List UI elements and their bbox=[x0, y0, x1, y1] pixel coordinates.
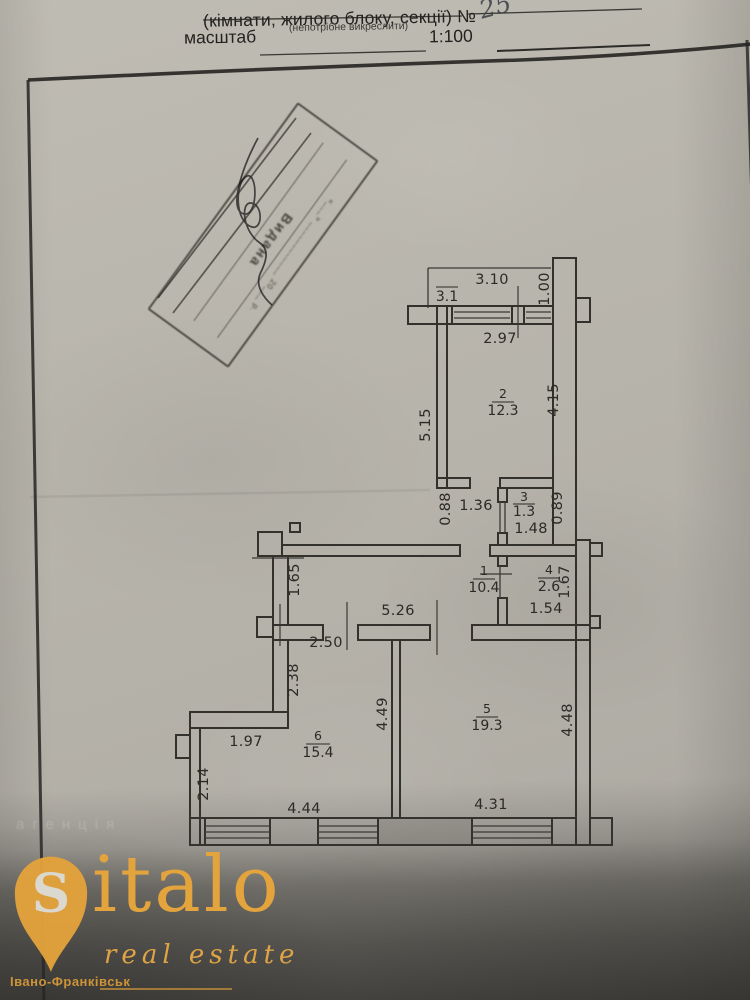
number-sign: № bbox=[457, 6, 476, 26]
logo-city-text: Івано-Франківськ bbox=[10, 974, 130, 989]
dim-label: 5.26 bbox=[381, 603, 415, 619]
dim-label: 2.97 bbox=[483, 331, 517, 347]
scale-label: масштаб bbox=[184, 26, 256, 48]
dim-label: 0.88 bbox=[438, 492, 454, 526]
dim-label: 1.48 bbox=[514, 521, 548, 537]
dim-label: 1.36 bbox=[459, 498, 493, 514]
map-pin-icon: S bbox=[8, 846, 94, 974]
dim-label: 5.15 bbox=[418, 408, 434, 442]
room-number: 4 bbox=[545, 562, 553, 577]
faint-watermark-text: агенція bbox=[16, 816, 122, 833]
room-number: 1 bbox=[480, 563, 488, 578]
form-subtitle: (непотрібне викреслити) bbox=[289, 20, 408, 34]
room-number: 6 bbox=[314, 728, 322, 743]
dim-label: 1.54 bbox=[529, 601, 563, 617]
room-number: 3 bbox=[520, 489, 528, 504]
dim-label: 1.65 bbox=[287, 563, 303, 597]
room-area: 15.4 bbox=[302, 745, 333, 761]
logo-pin-letter: S bbox=[32, 862, 71, 925]
paper-crease bbox=[30, 490, 430, 497]
balcony-area: 3.1 bbox=[436, 289, 458, 305]
dim-label: 2.50 bbox=[309, 635, 343, 651]
logo-brand-text: italo bbox=[92, 846, 282, 924]
handwritten-number: 25 bbox=[476, 0, 515, 24]
dim-label: 1.00 bbox=[537, 272, 553, 306]
room-number: 2 bbox=[499, 386, 507, 401]
scale-value: 1:100 bbox=[429, 26, 473, 48]
dim-label: 4.48 bbox=[560, 703, 576, 737]
dim-label: 4.31 bbox=[474, 797, 508, 813]
dim-label: 3.10 bbox=[475, 272, 509, 288]
dim-label: 2.38 bbox=[286, 663, 302, 697]
dim-label: 0.89 bbox=[550, 491, 566, 525]
dim-label: 4.49 bbox=[375, 697, 391, 731]
photographed-floor-plan-document: 3.10 1.00 3.1 2.97 5.15 4.15 2 12.3 0.88… bbox=[0, 0, 750, 1000]
dim-label: 4.44 bbox=[287, 801, 321, 817]
logo-city-underline bbox=[100, 988, 232, 990]
room-area: 10.4 bbox=[468, 580, 499, 596]
dim-label: 1.67 bbox=[557, 565, 573, 599]
logo-tagline: real estate bbox=[104, 940, 299, 970]
dim-label: 1.97 bbox=[229, 734, 263, 750]
room-area: 1.3 bbox=[513, 504, 535, 520]
room-number: 5 bbox=[483, 701, 491, 716]
room-area: 19.3 bbox=[471, 718, 502, 734]
dim-label: 4.15 bbox=[546, 383, 562, 417]
dim-label: 2.14 bbox=[196, 767, 212, 801]
room-area: 12.3 bbox=[487, 403, 518, 419]
